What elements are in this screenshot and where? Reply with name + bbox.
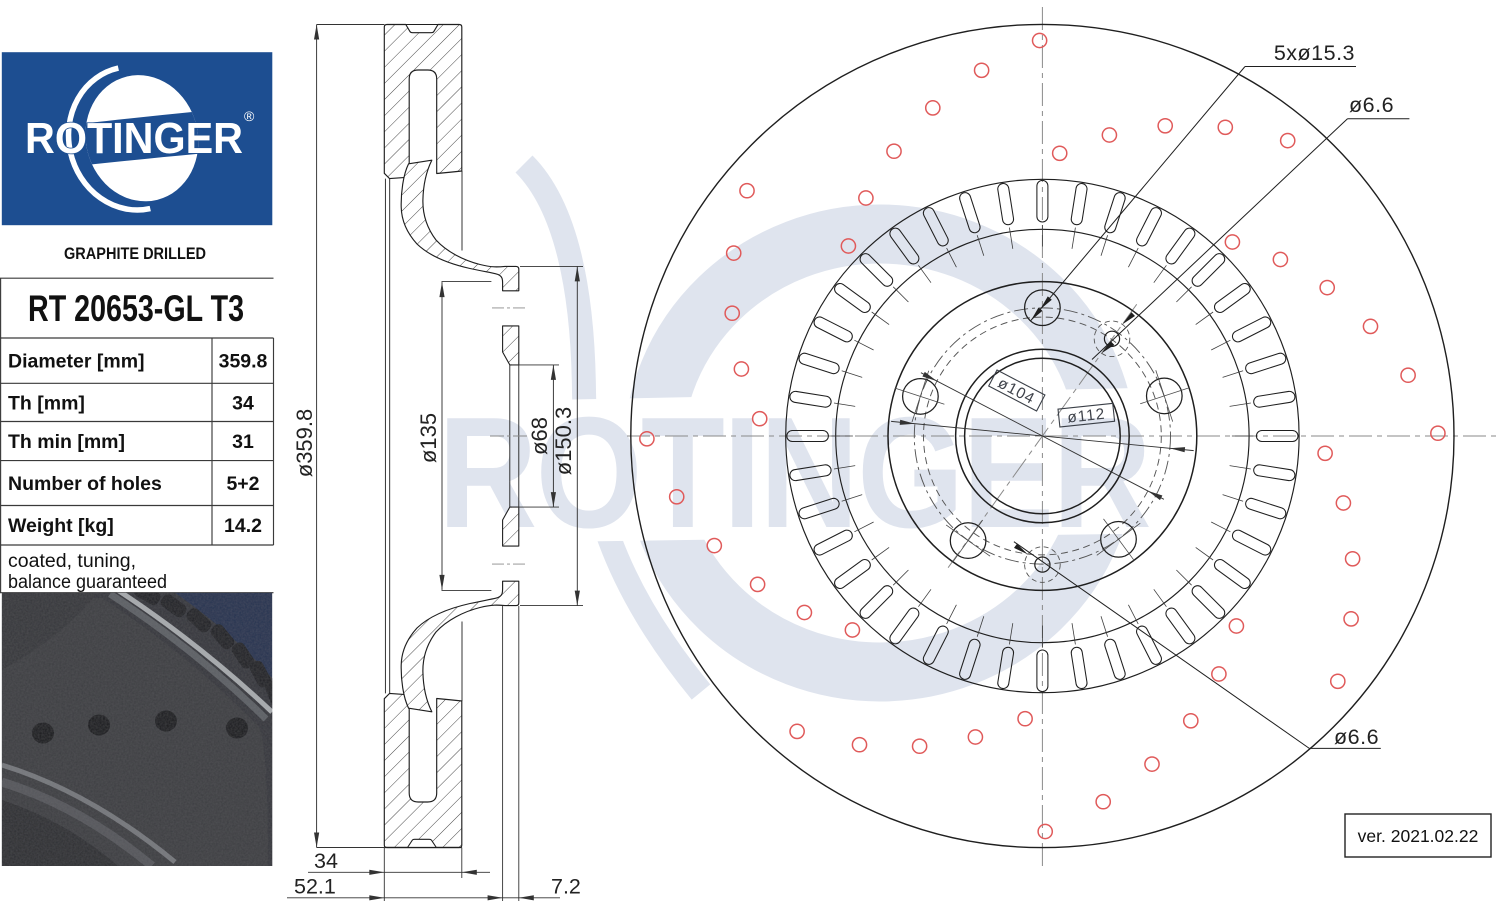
svg-text:ø68: ø68 [527,417,552,455]
svg-text:7.2: 7.2 [551,875,581,899]
svg-text:359.8: 359.8 [219,351,268,373]
svg-text:5+2: 5+2 [226,473,259,495]
svg-text:Weight [kg]: Weight [kg] [8,515,114,537]
svg-text:balance guaranteed: balance guaranteed [8,572,167,593]
svg-text:Number of holes: Number of holes [8,473,162,495]
svg-text:ROTINGER: ROTINGER [25,114,243,163]
svg-text:34: 34 [232,392,254,414]
svg-text:ver. 2021.02.22: ver. 2021.02.22 [1358,826,1479,846]
svg-text:ROTINGER: ROTINGER [438,385,1150,561]
svg-text:Th [mm]: Th [mm] [8,392,85,414]
svg-text:ø359.8: ø359.8 [292,409,317,478]
svg-text:®: ® [244,108,255,124]
svg-text:coated, tuning,: coated, tuning, [8,551,136,572]
svg-text:52.1: 52.1 [294,875,336,899]
svg-text:14.2: 14.2 [224,515,262,537]
svg-text:ø6.6: ø6.6 [1349,93,1394,117]
svg-text:31: 31 [232,431,254,453]
svg-text:5xø15.3: 5xø15.3 [1274,41,1355,65]
svg-text:Diameter [mm]: Diameter [mm] [8,351,145,373]
svg-text:GRAPHITE DRILLED: GRAPHITE DRILLED [64,244,206,263]
svg-text:ø6.6: ø6.6 [1334,725,1379,749]
svg-text:ø150.3: ø150.3 [551,407,576,476]
svg-text:Th min [mm]: Th min [mm] [8,431,125,453]
svg-text:ø135: ø135 [416,413,441,463]
svg-text:34: 34 [314,849,338,873]
svg-text:RT 20653-GL T3: RT 20653-GL T3 [28,288,244,329]
